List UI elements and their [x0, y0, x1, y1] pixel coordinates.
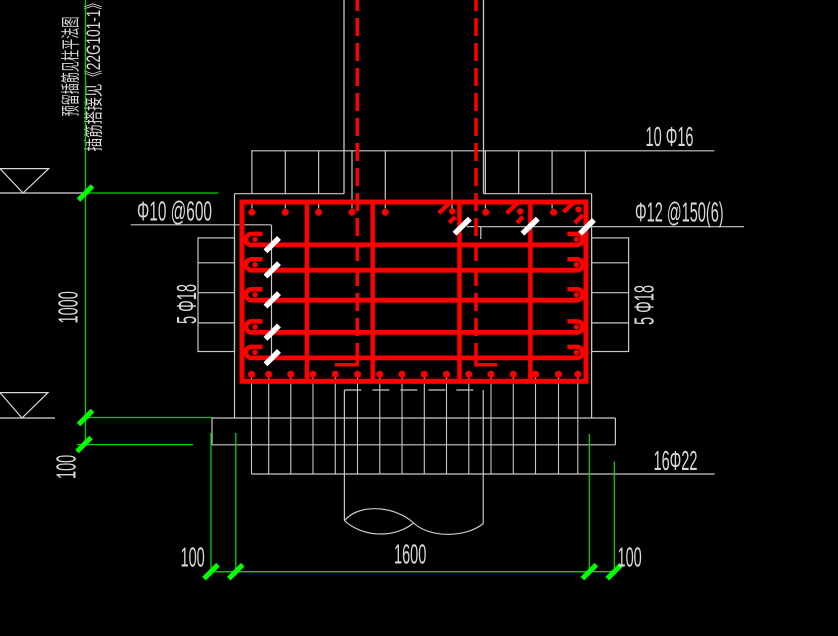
- svg-text:预留插筋见柱平法图: 预留插筋见柱平法图: [60, 17, 82, 117]
- svg-text:5 Φ18: 5 Φ18: [628, 285, 659, 325]
- svg-text:Φ12 @150(6): Φ12 @150(6): [635, 196, 724, 227]
- svg-text:100: 100: [618, 541, 642, 572]
- svg-text:100: 100: [50, 455, 81, 479]
- svg-text:1000: 1000: [52, 291, 83, 323]
- svg-text:100: 100: [181, 541, 205, 572]
- svg-text:Φ10 @600: Φ10 @600: [137, 196, 212, 227]
- svg-text:16Φ22: 16Φ22: [654, 445, 698, 476]
- svg-text:5 Φ18: 5 Φ18: [171, 284, 202, 324]
- svg-text:10 Φ16: 10 Φ16: [646, 121, 694, 152]
- svg-text:1600: 1600: [394, 538, 426, 569]
